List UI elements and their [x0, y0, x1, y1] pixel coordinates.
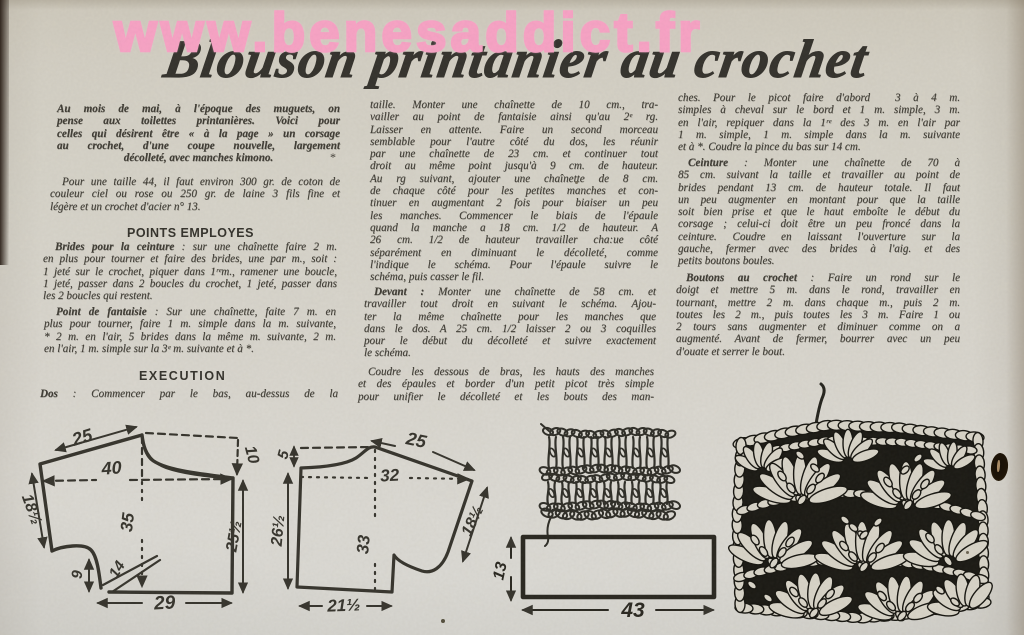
svg-text:5: 5	[274, 448, 293, 461]
svg-text:10: 10	[241, 444, 262, 466]
svg-text:43: 43	[620, 599, 645, 622]
svg-text:14: 14	[106, 557, 130, 581]
svg-text:33: 33	[353, 534, 374, 555]
svg-text:29: 29	[153, 592, 177, 614]
svg-text:35: 35	[117, 511, 138, 533]
svg-text:26½: 26½	[269, 514, 289, 548]
svg-text:25: 25	[69, 424, 96, 450]
svg-text:18½: 18½	[18, 492, 45, 527]
svg-text:40: 40	[100, 457, 122, 478]
svg-text:13: 13	[490, 560, 510, 581]
svg-text:25: 25	[403, 428, 429, 452]
svg-text:21½: 21½	[326, 595, 361, 615]
svg-text:9: 9	[69, 569, 87, 579]
svg-text:32: 32	[380, 465, 400, 485]
